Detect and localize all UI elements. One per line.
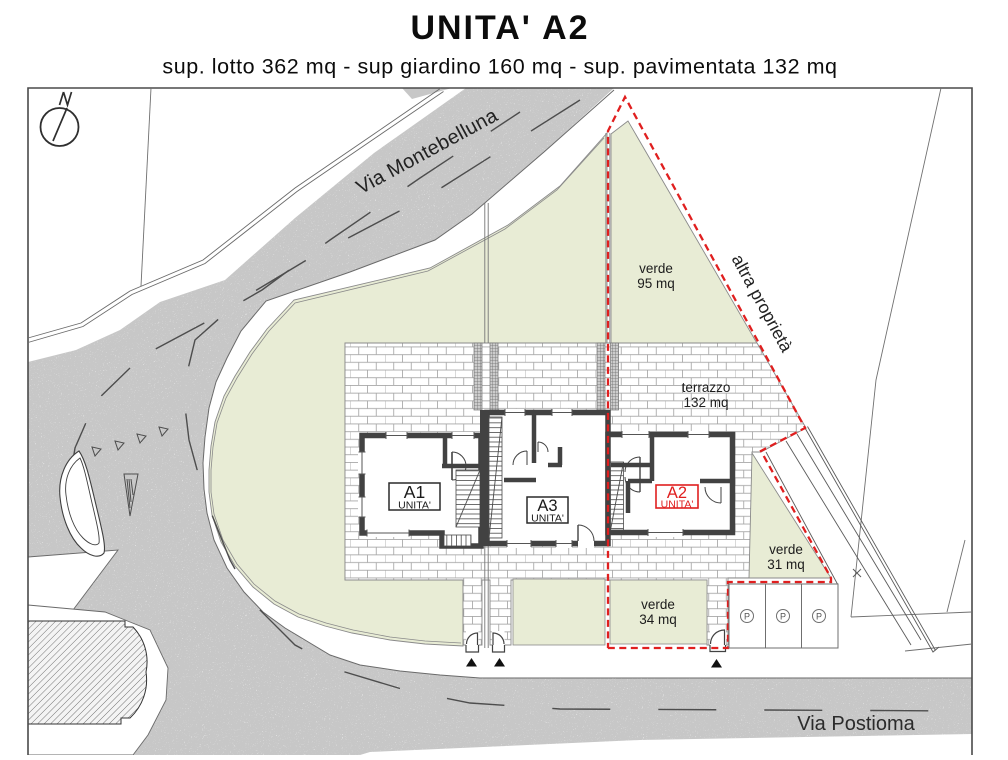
svg-text:31 mq: 31 mq bbox=[767, 557, 805, 572]
svg-text:P: P bbox=[780, 612, 786, 622]
svg-text:Via Postioma: Via Postioma bbox=[797, 713, 915, 735]
svg-text:verde: verde bbox=[769, 542, 803, 557]
svg-text:P: P bbox=[816, 612, 822, 622]
svg-text:34 mq: 34 mq bbox=[639, 612, 677, 627]
svg-text:UNITA': UNITA' bbox=[661, 499, 694, 511]
svg-text:UNITA': UNITA' bbox=[398, 500, 431, 512]
svg-text:sup. lotto 362 mq - sup giardi: sup. lotto 362 mq - sup giardino 160 mq … bbox=[162, 55, 837, 79]
svg-text:132 mq: 132 mq bbox=[683, 395, 728, 410]
svg-text:UNITA' A2: UNITA' A2 bbox=[410, 9, 589, 47]
svg-text:UNITA': UNITA' bbox=[531, 513, 564, 525]
svg-text:terrazzo: terrazzo bbox=[682, 380, 731, 395]
svg-text:verde: verde bbox=[639, 261, 673, 276]
svg-text:95 mq: 95 mq bbox=[637, 276, 675, 291]
svg-text:P: P bbox=[744, 612, 750, 622]
svg-text:verde: verde bbox=[641, 597, 675, 612]
